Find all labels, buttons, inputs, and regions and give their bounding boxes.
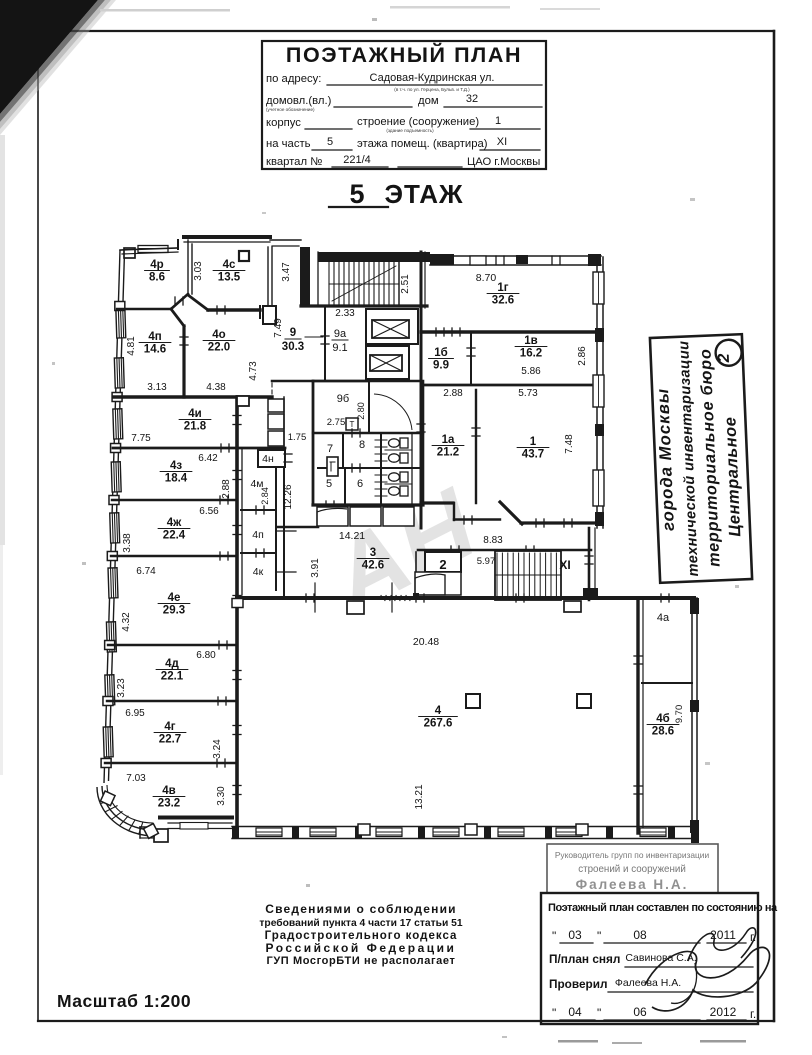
svg-text:4.81: 4.81 bbox=[126, 336, 137, 356]
svg-text:4е: 4е bbox=[168, 592, 181, 604]
svg-text:32.6: 32.6 bbox=[492, 295, 514, 307]
svg-text:4д: 4д bbox=[165, 658, 179, 670]
svg-text:XI: XI bbox=[497, 136, 507, 148]
svg-text:3.23: 3.23 bbox=[116, 678, 127, 698]
svg-text:04: 04 bbox=[568, 1005, 582, 1019]
svg-text:14.6: 14.6 bbox=[144, 344, 166, 356]
svg-text:2.33: 2.33 bbox=[335, 308, 355, 319]
svg-text:03: 03 bbox=[568, 928, 582, 942]
svg-text:4п: 4п bbox=[148, 331, 161, 343]
svg-text:ГУП МосгорБТИ не располагает: ГУП МосгорБТИ не располагает bbox=[267, 955, 456, 967]
svg-text:": " bbox=[552, 929, 556, 943]
svg-text:6.42: 6.42 bbox=[198, 453, 218, 464]
svg-text:ПОЭТАЖНЫЙ ПЛАН: ПОЭТАЖНЫЙ ПЛАН bbox=[286, 42, 522, 67]
svg-text:4з: 4з bbox=[170, 460, 182, 472]
svg-text:(здание подъемность): (здание подъемность) bbox=[386, 128, 434, 133]
svg-text:1.75: 1.75 bbox=[288, 432, 307, 443]
svg-text:18.4: 18.4 bbox=[165, 473, 188, 485]
svg-text:8.83: 8.83 bbox=[483, 535, 503, 546]
svg-text:267.6: 267.6 bbox=[424, 718, 453, 730]
svg-text:строений и сооружений: строений и сооружений bbox=[578, 864, 686, 875]
svg-text:4г: 4г bbox=[164, 721, 175, 733]
svg-text:30.3: 30.3 bbox=[282, 341, 304, 353]
svg-text:XI: XI bbox=[559, 558, 570, 572]
svg-text:4.32: 4.32 bbox=[121, 612, 132, 632]
svg-text:Масштаб 1:200: Масштаб 1:200 bbox=[57, 991, 191, 1011]
svg-text:Сведениями о соблюдении: Сведениями о соблюдении bbox=[265, 902, 456, 916]
svg-text:4н: 4н bbox=[262, 453, 274, 465]
svg-text:4в: 4в bbox=[162, 785, 175, 797]
svg-text:06: 06 bbox=[633, 1005, 647, 1019]
svg-text:": " bbox=[597, 929, 601, 943]
svg-text:3.30: 3.30 bbox=[216, 786, 227, 806]
svg-text:(учетное обозначение): (учетное обозначение) bbox=[266, 107, 315, 112]
svg-text:13.21: 13.21 bbox=[414, 784, 425, 809]
svg-text:9.9: 9.9 bbox=[433, 360, 449, 372]
svg-text:4п: 4п bbox=[252, 529, 264, 541]
svg-text:3.13: 3.13 bbox=[147, 382, 167, 393]
svg-text:4о: 4о bbox=[212, 329, 225, 341]
svg-text:6: 6 bbox=[357, 478, 363, 490]
svg-text:строение (сооружение): строение (сооружение) bbox=[357, 116, 479, 128]
svg-text:4с: 4с bbox=[223, 259, 236, 271]
svg-text:(в т.ч. по ул. Герцена, Бульв.: (в т.ч. по ул. Герцена, Бульв. и Т.Д.) bbox=[394, 87, 470, 92]
svg-text:Т: Т bbox=[350, 420, 355, 429]
svg-text:7.75: 7.75 bbox=[131, 433, 151, 444]
svg-text:2.84: 2.84 bbox=[260, 487, 270, 505]
svg-text:2.75: 2.75 bbox=[327, 417, 346, 428]
svg-text:43.7: 43.7 bbox=[522, 449, 544, 461]
svg-text:6.95: 6.95 bbox=[125, 708, 145, 719]
svg-text:ЭТАЖ: ЭТАЖ bbox=[384, 179, 463, 209]
svg-text:32: 32 bbox=[466, 93, 478, 105]
svg-text:4к: 4к bbox=[253, 566, 264, 578]
svg-text:8.6: 8.6 bbox=[149, 272, 165, 284]
svg-text:2: 2 bbox=[716, 353, 733, 364]
svg-text:3.91: 3.91 bbox=[310, 558, 321, 578]
svg-text:12.26: 12.26 bbox=[283, 484, 294, 509]
svg-text:квартал №: квартал № bbox=[266, 156, 322, 168]
svg-text:16.2: 16.2 bbox=[520, 348, 542, 360]
svg-text:7: 7 bbox=[327, 443, 333, 455]
svg-text:4и: 4и bbox=[188, 408, 201, 420]
svg-text:29.3: 29.3 bbox=[163, 605, 185, 617]
svg-text:9.1: 9.1 bbox=[332, 342, 347, 354]
svg-text:Поэтажный план составлен по со: Поэтажный план составлен по состоянию на bbox=[548, 902, 778, 914]
svg-text:Российской Федерации: Российской Федерации bbox=[266, 941, 457, 955]
svg-text:": " bbox=[597, 1006, 601, 1020]
svg-text:4а: 4а bbox=[657, 612, 670, 624]
svg-text:3.38: 3.38 bbox=[122, 533, 133, 553]
svg-text:2.88: 2.88 bbox=[221, 479, 232, 499]
svg-text:": " bbox=[552, 1006, 556, 1020]
svg-text:ЦАО г.Москвы: ЦАО г.Москвы bbox=[467, 156, 540, 168]
svg-text:9а: 9а bbox=[334, 328, 347, 340]
svg-text:2012: 2012 bbox=[710, 1005, 737, 1019]
svg-text:20.48: 20.48 bbox=[413, 636, 439, 648]
svg-text:22.4: 22.4 bbox=[163, 530, 186, 542]
svg-text:6.74: 6.74 bbox=[136, 566, 156, 577]
svg-text:3.24: 3.24 bbox=[212, 739, 223, 759]
svg-text:на часть: на часть bbox=[266, 138, 311, 150]
svg-text:221/4: 221/4 bbox=[343, 154, 371, 166]
svg-text:3.47: 3.47 bbox=[281, 262, 292, 282]
svg-text:28.6: 28.6 bbox=[652, 726, 674, 738]
svg-text:08: 08 bbox=[633, 928, 647, 942]
svg-text:22.7: 22.7 bbox=[159, 734, 181, 746]
svg-text:23.2: 23.2 bbox=[158, 798, 180, 810]
svg-text:42.6: 42.6 bbox=[362, 560, 384, 572]
svg-text:2.88: 2.88 bbox=[443, 388, 463, 399]
svg-text:корпус: корпус bbox=[266, 117, 301, 129]
svg-text:4р: 4р bbox=[150, 259, 163, 271]
svg-text:П/план снял: П/план снял bbox=[549, 952, 620, 966]
svg-text:1: 1 bbox=[530, 436, 537, 448]
svg-text:22.0: 22.0 bbox=[208, 342, 230, 354]
svg-text:по адресу:: по адресу: bbox=[266, 73, 321, 85]
svg-text:4.73: 4.73 bbox=[248, 361, 259, 381]
svg-text:Савинова С.А.: Савинова С.А. bbox=[625, 952, 696, 964]
svg-text:6.56: 6.56 bbox=[199, 506, 219, 517]
svg-text:территориальное бюро: территориальное бюро bbox=[696, 348, 723, 567]
svg-text:4ж: 4ж bbox=[167, 517, 182, 529]
svg-text:3.03: 3.03 bbox=[193, 261, 204, 281]
svg-text:5.86: 5.86 bbox=[521, 366, 541, 377]
svg-text:2.86: 2.86 bbox=[577, 346, 588, 366]
svg-text:5.73: 5.73 bbox=[518, 388, 538, 399]
svg-text:5: 5 bbox=[349, 179, 364, 209]
svg-text:1г: 1г bbox=[497, 282, 508, 294]
svg-text:6.80: 6.80 bbox=[196, 650, 216, 661]
svg-text:2: 2 bbox=[439, 557, 446, 572]
svg-text:4.38: 4.38 bbox=[206, 382, 226, 393]
svg-text:1в: 1в bbox=[524, 335, 537, 347]
svg-text:8.70: 8.70 bbox=[476, 272, 497, 284]
svg-text:1: 1 bbox=[495, 115, 501, 127]
svg-text:Фалеева Н.А.: Фалеева Н.А. bbox=[576, 877, 689, 892]
svg-text:9.70: 9.70 bbox=[674, 705, 685, 724]
svg-text:5: 5 bbox=[326, 478, 332, 490]
svg-text:22.1: 22.1 bbox=[161, 671, 184, 683]
svg-text:4: 4 bbox=[435, 705, 442, 717]
svg-text:4б: 4б bbox=[656, 713, 670, 725]
svg-text:требований пункта 4 части 17 с: требований пункта 4 части 17 статьи 51 bbox=[259, 917, 463, 929]
svg-text:1а: 1а bbox=[442, 434, 455, 446]
svg-text:3: 3 bbox=[370, 547, 376, 559]
svg-text:Центральное: Центральное bbox=[721, 416, 744, 537]
svg-text:5: 5 bbox=[327, 136, 333, 148]
svg-text:13.5: 13.5 bbox=[218, 272, 241, 284]
svg-text:домовл.(вл.): домовл.(вл.) bbox=[266, 95, 332, 107]
svg-text:этажа помещ. (квартира): этажа помещ. (квартира) bbox=[357, 138, 488, 150]
svg-text:1б: 1б bbox=[434, 347, 448, 359]
svg-text:Проверил: Проверил bbox=[549, 977, 608, 991]
svg-text:21.2: 21.2 bbox=[437, 447, 459, 459]
svg-text:7.49: 7.49 bbox=[273, 318, 284, 338]
svg-text:9б: 9б bbox=[337, 393, 349, 405]
svg-text:21.8: 21.8 bbox=[184, 421, 207, 433]
svg-text:8: 8 bbox=[359, 439, 365, 451]
svg-text:9: 9 bbox=[290, 327, 296, 339]
svg-text:г.: г. bbox=[750, 1007, 756, 1021]
svg-text:7.03: 7.03 bbox=[126, 773, 146, 784]
svg-text:2.51: 2.51 bbox=[400, 274, 411, 294]
svg-text:14.21: 14.21 bbox=[339, 530, 365, 542]
svg-text:2.80: 2.80 bbox=[356, 402, 366, 420]
svg-text:Садовая-Кудринская ул.: Садовая-Кудринская ул. bbox=[370, 72, 495, 84]
svg-text:Руководитель групп по инвентар: Руководитель групп по инвентаризации bbox=[555, 850, 710, 860]
svg-text:5.97: 5.97 bbox=[477, 556, 496, 567]
svg-text:дом: дом bbox=[418, 95, 439, 107]
svg-text:7.48: 7.48 bbox=[564, 434, 575, 454]
